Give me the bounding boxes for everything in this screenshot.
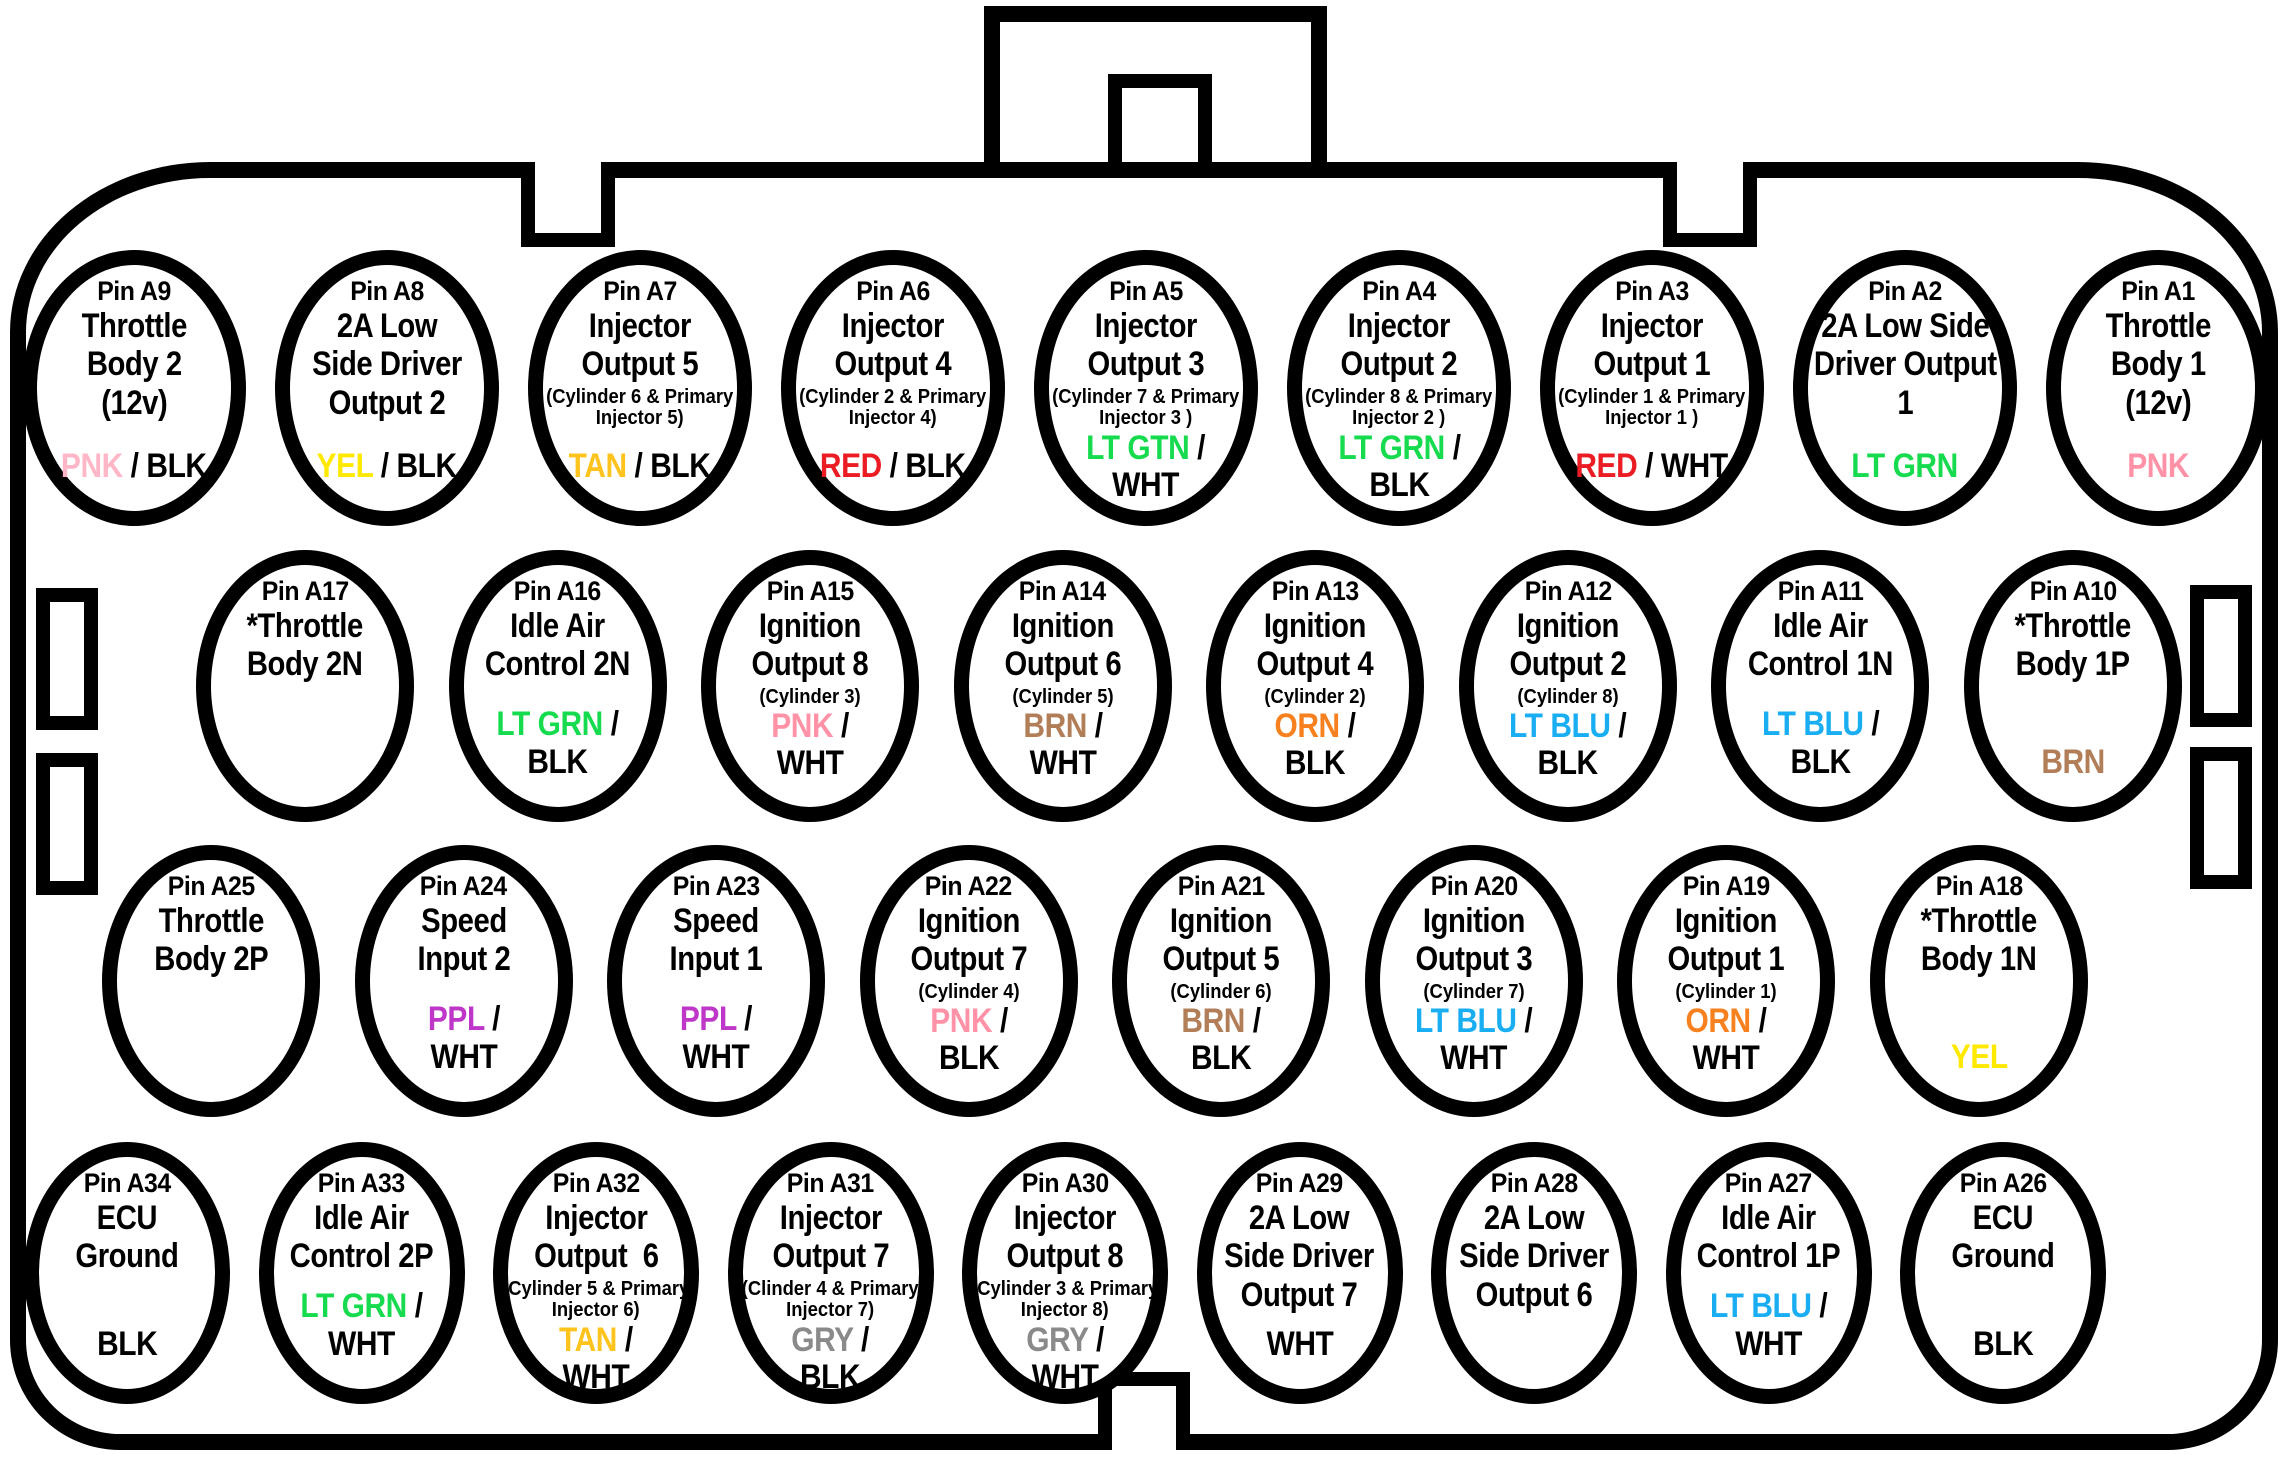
pin-pin-a2: Pin A22A Low Side Driver Output 1LT GRN xyxy=(1793,250,2017,526)
pin-wire-colors: BRN /BLK xyxy=(1182,1003,1261,1078)
wire-color-text: / xyxy=(1340,707,1356,745)
wire-color-line: YEL / BLK xyxy=(317,448,457,485)
pin-id: Pin A34 xyxy=(84,1169,171,1197)
pin-id: Pin A15 xyxy=(767,577,854,605)
pin-function-label: Idle Air Control 2P xyxy=(290,1199,434,1275)
wire-color-text: / WHT xyxy=(1638,447,1728,485)
pin-wire-colors: PPL /WHT xyxy=(680,1001,752,1076)
wire-color-line: WHT xyxy=(559,1359,633,1396)
wire-color-text: PNK xyxy=(2127,447,2189,485)
wire-color-line: GRY / xyxy=(1026,1322,1104,1359)
wire-color-text: / xyxy=(1088,1321,1104,1359)
wire-color-line: BLK xyxy=(1338,467,1460,504)
wire-color-line: BRN / xyxy=(1023,708,1102,745)
wire-color-text: / xyxy=(854,1321,870,1359)
wire-color-text: LT BLU xyxy=(1509,707,1611,745)
pin-function-label: Speed Input 1 xyxy=(670,902,763,978)
wire-color-text: WHT xyxy=(777,744,844,782)
wire-color-text: RED xyxy=(1576,447,1638,485)
pin-wire-colors: GRY /WHT xyxy=(1026,1322,1104,1397)
wire-color-text: / BLK xyxy=(123,447,207,485)
pin-function-label: Injector Output 8 xyxy=(1007,1199,1124,1275)
pin-function-label: 2A Low Side Driver Output 6 xyxy=(1459,1199,1609,1313)
side-clip-right-upper xyxy=(2190,585,2252,727)
pin-function-label: Idle Air Control 2N xyxy=(485,607,630,683)
wire-color-text: LT BLU xyxy=(1762,705,1864,743)
wire-color-text: LT BLU xyxy=(1710,1287,1812,1325)
pin-function-label: Ignition Output 2 xyxy=(1509,607,1626,683)
top-notch-right xyxy=(1663,162,1757,247)
pin-id: Pin A30 xyxy=(1022,1169,1109,1197)
pin-wire-colors: LT BLU /BLK xyxy=(1509,708,1626,783)
pin-wire-colors: BLK xyxy=(97,1326,157,1363)
pin-pin-a22: Pin A22Ignition Output 7(Cylinder 4)PNK … xyxy=(860,845,1078,1117)
wire-color-text: / xyxy=(1811,1287,1827,1325)
pin-cylinder-note: (Cylinder 6) xyxy=(1171,982,1272,1004)
pin-wire-colors: PNK /BLK xyxy=(930,1003,1008,1078)
pin-wire-colors: RED / WHT xyxy=(1576,448,1728,485)
wire-color-line: BLK xyxy=(1973,1326,2033,1363)
wire-color-line: PPL / xyxy=(680,1001,752,1038)
pin-pin-a13: Pin A13Ignition Output 4(Cylinder 2)ORN … xyxy=(1206,550,1424,822)
pin-pin-a14: Pin A14Ignition Output 6(Cylinder 5)BRN … xyxy=(954,550,1172,822)
pin-function-label: Throttle Body 1 (12v) xyxy=(2105,307,2210,421)
wire-color-line: LT GTN / xyxy=(1087,430,1206,467)
wire-color-line: BLK xyxy=(792,1359,870,1396)
wire-color-text: WHT xyxy=(1113,466,1180,504)
pin-pin-a18: Pin A18*Throttle Body 1NYEL xyxy=(1870,845,2088,1117)
wire-color-text: WHT xyxy=(563,1358,630,1396)
pin-pin-a16: Pin A16Idle Air Control 2NLT GRN /BLK xyxy=(449,550,667,822)
pin-id: Pin A7 xyxy=(603,277,677,305)
pin-cylinder-note: (Cylinder 8) xyxy=(1517,687,1618,709)
wire-color-text: WHT xyxy=(430,1038,497,1076)
wire-color-text: BLK xyxy=(800,1358,860,1396)
wire-color-text: LT GRN xyxy=(1338,429,1444,467)
wire-color-text: / xyxy=(407,1287,423,1325)
wire-color-text: BRN xyxy=(2041,743,2105,781)
wire-color-line: PNK xyxy=(2127,448,2189,485)
pin-pin-a28: Pin A282A Low Side Driver Output 6 xyxy=(1431,1142,1637,1404)
pin-pin-a24: Pin A24Speed Input 2PPL /WHT xyxy=(355,845,573,1117)
pin-wire-colors: BRN /WHT xyxy=(1023,708,1102,783)
wire-color-line: WHT xyxy=(1415,1040,1532,1077)
pin-cylinder-note: (Cylinder 4) xyxy=(918,982,1019,1004)
wire-color-line: BLK xyxy=(930,1040,1008,1077)
pin-id: Pin A22 xyxy=(925,872,1012,900)
wire-color-text: LT GRN xyxy=(1852,447,1958,485)
pin-id: Pin A1 xyxy=(2121,277,2195,305)
pin-function-label: ECU Ground xyxy=(75,1199,178,1275)
pin-cylinder-note: (Cylinder 5 & Primary Injector 6) xyxy=(502,1279,689,1322)
wire-color-text: / BLK xyxy=(373,447,457,485)
pin-pin-a31: Pin A31Injector Output 7(Clinder 4 & Pri… xyxy=(728,1142,934,1404)
pin-function-label: *Throttle Body 1N xyxy=(1921,902,2037,978)
wire-color-text: / xyxy=(736,1000,752,1038)
pin-cylinder-note: (Cylinder 7) xyxy=(1423,982,1524,1004)
pin-function-label: 2A Low Side Driver Output 7 xyxy=(1225,1199,1375,1313)
pin-id: Pin A19 xyxy=(1683,872,1770,900)
wire-color-text: / xyxy=(1517,1002,1533,1040)
wire-color-line: ORN / xyxy=(1275,708,1356,745)
pin-id: Pin A24 xyxy=(420,872,507,900)
pin-pin-a6: Pin A6Injector Output 4(Cylinder 2 & Pri… xyxy=(781,250,1005,526)
pin-function-label: Ignition Output 6 xyxy=(1004,607,1121,683)
wire-color-text: / xyxy=(1863,705,1879,743)
wire-color-text: ORN xyxy=(1275,707,1340,745)
wire-color-line: WHT xyxy=(1087,467,1206,504)
pin-id: Pin A29 xyxy=(1256,1169,1343,1197)
pin-id: Pin A18 xyxy=(1935,872,2022,900)
pin-wire-colors: PNK xyxy=(2127,448,2189,485)
wire-color-line: WHT xyxy=(771,745,849,782)
pin-pin-a4: Pin A4Injector Output 2(Cylinder 8 & Pri… xyxy=(1287,250,1511,526)
pin-function-label: Ignition Output 1 xyxy=(1668,902,1785,978)
wire-color-line: LT GRN xyxy=(1852,448,1958,485)
wire-color-line: RED / BLK xyxy=(820,448,966,485)
pin-cylinder-note: (Cylinder 5) xyxy=(1012,687,1113,709)
pin-pin-a1: Pin A1Throttle Body 1 (12v)PNK xyxy=(2046,250,2270,526)
wire-color-line: TAN / xyxy=(559,1322,633,1359)
pin-row-2: Pin A17*Throttle Body 2NPin A16Idle Air … xyxy=(196,550,2182,824)
pin-pin-a11: Pin A11Idle Air Control 1NLT BLU /BLK xyxy=(1711,550,1929,822)
wire-color-text: PNK xyxy=(771,707,833,745)
wire-color-line: LT GRN / xyxy=(496,706,618,743)
wire-color-text: / xyxy=(603,705,619,743)
wire-color-line: LT GRN / xyxy=(1338,430,1460,467)
pin-pin-a20: Pin A20Ignition Output 3(Cylinder 7)LT B… xyxy=(1365,845,1583,1117)
pin-function-label: 2A Low Side Driver Output 2 xyxy=(312,307,462,421)
pin-id: Pin A16 xyxy=(514,577,601,605)
pin-function-label: 2A Low Side Driver Output 1 xyxy=(1814,307,1997,421)
wire-color-text: BLK xyxy=(1285,744,1345,782)
pin-wire-colors: ORN /BLK xyxy=(1275,708,1356,783)
pin-id: Pin A8 xyxy=(350,277,424,305)
pin-function-label: Ignition Output 3 xyxy=(1415,902,1532,978)
pin-pin-a8: Pin A82A Low Side Driver Output 2YEL / B… xyxy=(275,250,499,526)
wire-color-text: BRN xyxy=(1182,1002,1246,1040)
wire-color-text: / BLK xyxy=(627,447,711,485)
pin-pin-a27: Pin A27Idle Air Control 1PLT BLU /WHT xyxy=(1666,1142,1872,1404)
pin-wire-colors: PNK / BLK xyxy=(61,448,207,485)
pin-id: Pin A26 xyxy=(1960,1169,2047,1197)
pin-function-label: Ignition Output 5 xyxy=(1163,902,1280,978)
wire-color-line: RED / WHT xyxy=(1576,448,1728,485)
wire-color-line: ORN / xyxy=(1686,1003,1767,1040)
pin-wire-colors: RED / BLK xyxy=(820,448,966,485)
pin-pin-a30: Pin A30Injector Output 8(Cylinder 3 & Pr… xyxy=(962,1142,1168,1404)
wire-color-line: WHT xyxy=(680,1039,752,1076)
pin-id: Pin A23 xyxy=(673,872,760,900)
wire-color-line: LT BLU / xyxy=(1509,708,1626,745)
pin-id: Pin A12 xyxy=(1524,577,1611,605)
wire-color-line: GRY / xyxy=(792,1322,870,1359)
pin-function-label: Throttle Body 2P xyxy=(154,902,268,978)
wire-color-text: TAN xyxy=(569,447,627,485)
side-clip-left-lower xyxy=(36,753,98,895)
pin-id: Pin A25 xyxy=(168,872,255,900)
wire-color-line: BLK xyxy=(1509,745,1626,782)
wire-color-text: YEL xyxy=(317,447,373,485)
pin-wire-colors: WHT xyxy=(1266,1326,1333,1363)
pin-cylinder-note: (Cylinder 1 & Primary Injector 1 ) xyxy=(1558,387,1745,430)
pin-pin-a26: Pin A26ECU GroundBLK xyxy=(1900,1142,2106,1404)
pin-pin-a25: Pin A25Throttle Body 2P xyxy=(102,845,320,1117)
wire-color-text: / xyxy=(1087,707,1103,745)
pin-wire-colors: BLK xyxy=(1973,1326,2033,1363)
wire-color-text: WHT xyxy=(1032,1358,1099,1396)
pin-function-label: Idle Air Control 1N xyxy=(1748,607,1893,683)
wire-color-text: PNK xyxy=(61,447,123,485)
pin-wire-colors: LT GRN /WHT xyxy=(300,1288,422,1363)
pin-wire-colors: TAN /WHT xyxy=(559,1322,633,1397)
pin-cylinder-note: (Clinder 4 & Primary Injector 7) xyxy=(742,1279,919,1322)
wire-color-line: WHT xyxy=(300,1326,422,1363)
pin-pin-a21: Pin A21Ignition Output 5(Cylinder 6)BRN … xyxy=(1112,845,1330,1117)
top-notch-left xyxy=(521,162,615,247)
pin-function-label: Injector Output 6 xyxy=(534,1199,658,1275)
pin-row-3: Pin A25Throttle Body 2PPin A24Speed Inpu… xyxy=(102,845,2088,1119)
wire-color-line: BRN / xyxy=(1182,1003,1261,1040)
wire-color-text: GRY xyxy=(1026,1321,1088,1359)
wire-color-text: WHT xyxy=(1735,1325,1802,1363)
wire-color-text: WHT xyxy=(1029,744,1096,782)
wire-color-line: WHT xyxy=(1710,1326,1827,1363)
pin-wire-colors: GRY /BLK xyxy=(792,1322,870,1397)
pin-cylinder-note: (Cylinder 3) xyxy=(760,687,861,709)
wire-color-text: BRN xyxy=(1023,707,1087,745)
pin-wire-colors: LT GRN xyxy=(1852,448,1958,485)
pin-id: Pin A17 xyxy=(262,577,349,605)
pin-function-label: Injector Output 1 xyxy=(1594,307,1711,383)
wire-color-text: BLK xyxy=(1790,743,1850,781)
wire-color-text: / xyxy=(1444,429,1460,467)
pin-function-label: Throttle Body 2 (12v) xyxy=(81,307,186,421)
ecu-connector-pinout-diagram: Pin A9Throttle Body 2 (12v)PNK / BLKPin … xyxy=(0,0,2290,1461)
pin-id: Pin A6 xyxy=(856,277,930,305)
wire-color-text: PNK xyxy=(930,1002,992,1040)
pin-cylinder-note: (Cylinder 2) xyxy=(1265,687,1366,709)
wire-color-text: BLK xyxy=(527,743,587,781)
pin-id: Pin A11 xyxy=(1778,577,1864,605)
pin-wire-colors: LT GTN /WHT xyxy=(1087,430,1206,505)
wire-color-text: RED xyxy=(820,447,882,485)
pin-function-label: Idle Air Control 1P xyxy=(1697,1199,1841,1275)
pin-function-label: Injector Output 5 xyxy=(582,307,699,383)
pin-id: Pin A10 xyxy=(2029,577,2116,605)
wire-color-text: WHT xyxy=(1266,1325,1333,1363)
pin-wire-colors: YEL / BLK xyxy=(317,448,457,485)
wire-color-text: PPL xyxy=(680,1000,736,1038)
pin-wire-colors: LT GRN /BLK xyxy=(496,706,618,781)
pin-function-label: *Throttle Body 1P xyxy=(2015,607,2131,683)
wire-color-text: PPL xyxy=(428,1000,484,1038)
pin-function-label: Speed Input 2 xyxy=(417,902,510,978)
pin-function-label: Injector Output 4 xyxy=(835,307,952,383)
pin-cylinder-note: (Cylinder 8 & Primary Injector 2 ) xyxy=(1305,387,1492,430)
wire-color-text: / xyxy=(1751,1002,1767,1040)
pin-id: Pin A13 xyxy=(1272,577,1359,605)
pin-function-label: Injector Output 7 xyxy=(772,1199,889,1275)
wire-color-text: / xyxy=(1245,1002,1261,1040)
pin-pin-a10: Pin A10*Throttle Body 1PBRN xyxy=(1964,550,2182,822)
pin-function-label: Ignition Output 4 xyxy=(1257,607,1374,683)
pin-wire-colors: YEL xyxy=(1951,1039,2008,1076)
pin-id: Pin A28 xyxy=(1491,1169,1578,1197)
pin-function-label: Injector Output 2 xyxy=(1341,307,1458,383)
wire-color-text: BLK xyxy=(1191,1039,1251,1077)
wire-color-line: BLK xyxy=(1762,744,1879,781)
pin-wire-colors: LT BLU /WHT xyxy=(1415,1003,1532,1078)
pin-pin-a29: Pin A292A Low Side Driver Output 7WHT xyxy=(1197,1142,1403,1404)
wire-color-line: LT BLU / xyxy=(1762,706,1879,743)
wire-color-line: PNK / xyxy=(771,708,849,745)
pin-id: Pin A5 xyxy=(1109,277,1183,305)
wire-color-line: PNK / xyxy=(930,1003,1008,1040)
wire-color-text: BLK xyxy=(939,1039,999,1077)
wire-color-line: BLK xyxy=(1182,1040,1261,1077)
pin-cylinder-note: (Cylinder 2 & Primary Injector 4) xyxy=(799,387,986,430)
wire-color-line: BLK xyxy=(1275,745,1356,782)
pin-wire-colors: ORN /WHT xyxy=(1686,1003,1767,1078)
pin-cylinder-note: (Cylinder 1) xyxy=(1676,982,1777,1004)
pin-pin-a12: Pin A12Ignition Output 2(Cylinder 8)LT B… xyxy=(1459,550,1677,822)
wire-color-text: BLK xyxy=(1973,1325,2033,1363)
wire-color-text: WHT xyxy=(328,1325,395,1363)
wire-color-text: / xyxy=(992,1002,1008,1040)
wire-color-text: LT GRN xyxy=(496,705,602,743)
pin-function-label: Injector Output 3 xyxy=(1088,307,1205,383)
pin-id: Pin A27 xyxy=(1725,1169,1812,1197)
pin-pin-a33: Pin A33Idle Air Control 2PLT GRN /WHT xyxy=(259,1142,465,1404)
pin-id: Pin A33 xyxy=(318,1169,405,1197)
pin-pin-a32: Pin A32Injector Output 6(Cylinder 5 & Pr… xyxy=(493,1142,699,1404)
pin-pin-a7: Pin A7Injector Output 5(Cylinder 6 & Pri… xyxy=(528,250,752,526)
wire-color-text: WHT xyxy=(683,1038,750,1076)
wire-color-text: / xyxy=(833,707,849,745)
wire-color-line: LT BLU / xyxy=(1710,1288,1827,1325)
pin-id: Pin A2 xyxy=(1868,277,1942,305)
pin-function-label: Ignition Output 8 xyxy=(752,607,869,683)
pin-wire-colors: LT GRN /BLK xyxy=(1338,430,1460,505)
wire-color-text: GRY xyxy=(792,1321,854,1359)
wire-color-text: BLK xyxy=(1369,466,1429,504)
wire-color-line: WHT xyxy=(1266,1326,1333,1363)
wire-color-line: WHT xyxy=(1686,1040,1767,1077)
pin-id: Pin A4 xyxy=(1362,277,1436,305)
wire-color-line: YEL xyxy=(1951,1039,2008,1076)
pin-function-label: ECU Ground xyxy=(1951,1199,2054,1275)
wire-color-line: PNK / BLK xyxy=(61,448,207,485)
wire-color-line: LT BLU / xyxy=(1415,1003,1532,1040)
pin-cylinder-note: (Cylinder 7 & Primary Injector 3 ) xyxy=(1052,387,1239,430)
wire-color-line: TAN / BLK xyxy=(569,448,711,485)
pin-id: Pin A9 xyxy=(97,277,171,305)
pin-pin-a34: Pin A34ECU GroundBLK xyxy=(24,1142,230,1404)
wire-color-line: BRN xyxy=(2041,744,2105,781)
wire-color-line: WHT xyxy=(1023,745,1102,782)
wire-color-text: ORN xyxy=(1686,1002,1751,1040)
pin-cylinder-note: (Cylinder 6 & Primary Injector 5) xyxy=(546,387,733,430)
pin-wire-colors: TAN / BLK xyxy=(569,448,711,485)
pin-cylinder-note: (Cylinder 3 & Primary Injector 8) xyxy=(971,1279,1158,1322)
side-clip-right-lower xyxy=(2190,747,2252,889)
wire-color-line: BLK xyxy=(97,1326,157,1363)
pin-id: Pin A21 xyxy=(1178,872,1265,900)
pin-function-label: Ignition Output 7 xyxy=(910,902,1027,978)
wire-color-text: / xyxy=(484,1000,500,1038)
pin-id: Pin A14 xyxy=(1019,577,1106,605)
wire-color-text: / xyxy=(1190,429,1206,467)
wire-color-line: LT GRN / xyxy=(300,1288,422,1325)
pin-pin-a19: Pin A19Ignition Output 1(Cylinder 1)ORN … xyxy=(1617,845,1835,1117)
pin-pin-a17: Pin A17*Throttle Body 2N xyxy=(196,550,414,822)
wire-color-text: TAN xyxy=(559,1321,617,1359)
pin-id: Pin A31 xyxy=(787,1169,874,1197)
pin-pin-a23: Pin A23Speed Input 1PPL /WHT xyxy=(607,845,825,1117)
pin-pin-a9: Pin A9Throttle Body 2 (12v)PNK / BLK xyxy=(22,250,246,526)
wire-color-text: YEL xyxy=(1951,1038,2008,1076)
pin-id: Pin A32 xyxy=(553,1169,640,1197)
pin-wire-colors: BRN xyxy=(2041,744,2105,781)
side-clip-left-upper xyxy=(36,588,98,730)
wire-color-line: WHT xyxy=(428,1039,500,1076)
wire-color-line: WHT xyxy=(1026,1359,1104,1396)
pin-id: Pin A20 xyxy=(1430,872,1517,900)
wire-color-text: BLK xyxy=(1538,744,1598,782)
pin-pin-a5: Pin A5Injector Output 3(Cylinder 7 & Pri… xyxy=(1034,250,1258,526)
wire-color-text: BLK xyxy=(97,1325,157,1363)
pin-wire-colors: PNK /WHT xyxy=(771,708,849,783)
pin-function-label: *Throttle Body 2N xyxy=(247,607,363,683)
pin-wire-colors: PPL /WHT xyxy=(428,1001,500,1076)
pin-pin-a15: Pin A15Ignition Output 8(Cylinder 3)PNK … xyxy=(701,550,919,822)
wire-color-text: / BLK xyxy=(882,447,966,485)
wire-color-line: BLK xyxy=(496,744,618,781)
pin-wire-colors: LT BLU /BLK xyxy=(1762,706,1879,781)
pin-row-1: Pin A9Throttle Body 2 (12v)PNK / BLKPin … xyxy=(22,250,2270,526)
pin-wire-colors: LT BLU /WHT xyxy=(1710,1288,1827,1363)
wire-color-text: LT BLU xyxy=(1415,1002,1517,1040)
wire-color-text: LT GTN xyxy=(1087,429,1190,467)
wire-color-text: WHT xyxy=(1440,1039,1507,1077)
pin-row-4: Pin A34ECU GroundBLKPin A33Idle Air Cont… xyxy=(24,1142,2106,1404)
wire-color-text: / xyxy=(617,1321,633,1359)
pin-pin-a3: Pin A3Injector Output 1(Cylinder 1 & Pri… xyxy=(1540,250,1764,526)
pin-id: Pin A3 xyxy=(1615,277,1689,305)
wire-color-line: PPL / xyxy=(428,1001,500,1038)
wire-color-text: / xyxy=(1611,707,1627,745)
wire-color-text: LT GRN xyxy=(300,1287,406,1325)
wire-color-text: WHT xyxy=(1693,1039,1760,1077)
